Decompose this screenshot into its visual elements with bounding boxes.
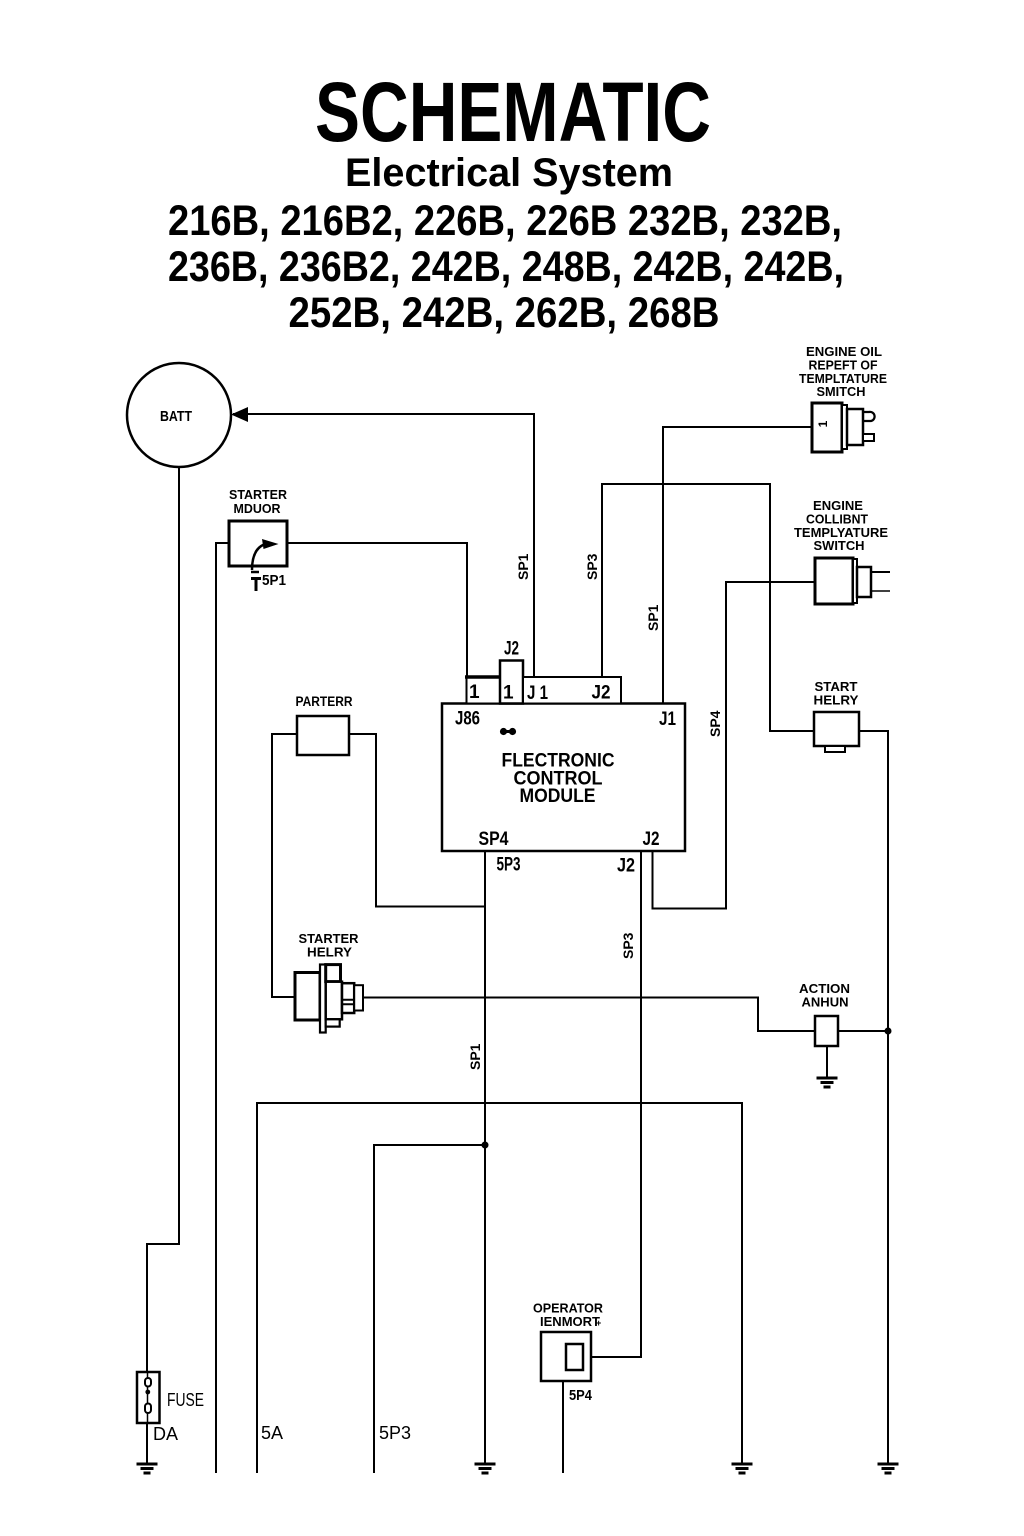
svg-text:SMITCH: SMITCH xyxy=(817,384,866,399)
svg-text:SCHEMATIC: SCHEMATIC xyxy=(315,65,711,159)
svg-text:J2: J2 xyxy=(504,639,519,660)
svg-text:SP1: SP1 xyxy=(515,553,531,580)
svg-text:SP1: SP1 xyxy=(467,1043,483,1070)
svg-text:216B, 216B2, 226B, 226B 232B,: 216B, 216B2, 226B, 226B 232B, 232B, xyxy=(168,197,842,245)
svg-text:SP3: SP3 xyxy=(620,932,636,959)
svg-text:5P3: 5P3 xyxy=(379,1423,411,1443)
svg-text:IENMORT: IENMORT xyxy=(540,1314,600,1329)
svg-text:252B, 242B, 262B, 268B: 252B, 242B, 262B, 268B xyxy=(289,289,720,337)
svg-text:FUSE: FUSE xyxy=(167,1390,204,1410)
svg-text:SP4: SP4 xyxy=(707,710,723,737)
svg-text:5P1: 5P1 xyxy=(262,572,286,589)
svg-text:Electrical System: Electrical System xyxy=(345,151,673,195)
svg-text:STARTER: STARTER xyxy=(229,487,288,502)
svg-text:J86: J86 xyxy=(455,709,480,730)
svg-text:PARTERR: PARTERR xyxy=(296,694,353,709)
svg-text:+: + xyxy=(596,1318,601,1328)
svg-text:SP3: SP3 xyxy=(584,553,600,580)
svg-text:HELRY: HELRY xyxy=(814,693,859,708)
svg-text:1: 1 xyxy=(469,682,480,703)
svg-text:SP4: SP4 xyxy=(479,829,509,850)
svg-text:1: 1 xyxy=(503,683,514,704)
svg-text:236B, 236B2, 242B, 248B, 242B,: 236B, 236B2, 242B, 248B, 242B, 242B, xyxy=(168,243,844,291)
svg-text:ANHUN: ANHUN xyxy=(802,995,849,1010)
svg-text:HELRY: HELRY xyxy=(307,945,352,960)
svg-text:J2: J2 xyxy=(592,683,611,704)
svg-text:J2: J2 xyxy=(617,856,635,877)
svg-text:SWITCH: SWITCH xyxy=(814,538,865,553)
svg-text:5P4: 5P4 xyxy=(569,1387,593,1404)
svg-text:1: 1 xyxy=(816,420,830,427)
svg-text:BATT: BATT xyxy=(160,408,192,425)
svg-text:5A: 5A xyxy=(261,1423,283,1443)
svg-text:5P3: 5P3 xyxy=(497,855,521,876)
svg-text:J1: J1 xyxy=(659,709,676,730)
svg-text:DA: DA xyxy=(153,1424,178,1444)
svg-text:SP1: SP1 xyxy=(645,604,661,631)
svg-text:J 1: J 1 xyxy=(527,683,548,704)
svg-text:MDUOR: MDUOR xyxy=(234,501,282,516)
svg-text:J2: J2 xyxy=(643,829,660,850)
svg-text:MODULE: MODULE xyxy=(520,786,596,807)
